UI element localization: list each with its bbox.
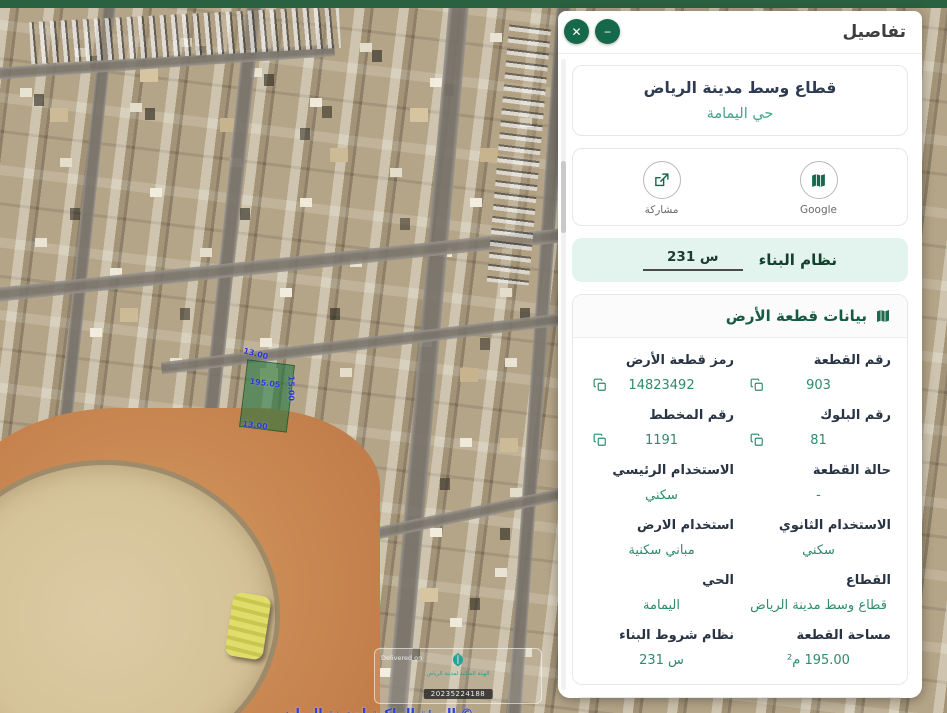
- watermark-org-text: الهيئة الملكية لمدينة الرياض: [426, 671, 489, 677]
- field-group: مساحة القطعة نظام شروط البناء 195.00 م² …: [589, 628, 891, 670]
- field-group: الاستخدام الثانوي استخدام الارض سكني مبا…: [589, 518, 891, 560]
- field-value: 195.00 م²: [746, 650, 891, 670]
- copy-icon[interactable]: [593, 378, 607, 392]
- field-value: س 231: [589, 650, 734, 670]
- panel-scroll-area[interactable]: قطاع وسط مدينة الرياض حي اليمامة Google …: [558, 53, 922, 698]
- map-icon: [875, 308, 891, 324]
- field-value: 14823492: [589, 375, 734, 395]
- minimize-button[interactable]: −: [595, 19, 620, 44]
- copy-icon[interactable]: [750, 433, 764, 447]
- map-attribution-text: © الهيئة الملكية لمدينة الرياض: [278, 707, 473, 713]
- parcel-data-header: بيانات قطعة الأرض: [573, 295, 907, 338]
- close-button[interactable]: ✕: [564, 19, 589, 44]
- field-label: رقم المخطط: [589, 408, 734, 423]
- field-value: -: [746, 485, 891, 505]
- field-value-text: 1191: [645, 433, 678, 448]
- rcrc-logo-icon: [451, 652, 464, 667]
- field-value: 903: [746, 375, 891, 395]
- share-icon: [643, 161, 681, 199]
- building-system-label: نظام البناء: [759, 251, 837, 269]
- top-green-bar: [0, 0, 947, 8]
- national-address-card: بيانات العنوان الوطني: [572, 697, 908, 698]
- google-label: Google: [800, 204, 837, 216]
- building-system-value[interactable]: س 231: [643, 249, 743, 271]
- building-system-bar: نظام البناء س 231: [572, 238, 908, 282]
- field-label: حالة القطعة: [746, 463, 891, 478]
- field-group: حالة القطعة الاستخدام الرئيسي - سكني: [589, 463, 891, 505]
- parcel-dimension-side: 15.00: [286, 376, 295, 401]
- watermark-box: Delivered on الهيئة الملكية لمدينة الريا…: [374, 648, 542, 704]
- watermark-logo: الهيئة الملكية لمدينة الرياض: [426, 652, 489, 677]
- field-value: مباني سكنية: [589, 540, 734, 560]
- parcel-data-body: رقم القطعة رمز قطعة الأرض 903 14823492 ر…: [573, 338, 907, 684]
- field-label: القطاع: [746, 573, 891, 588]
- panel-title: تفاصيل: [842, 22, 906, 42]
- parcel-area-label: 195.05: [249, 377, 281, 390]
- map-road: [387, 8, 470, 713]
- field-value: 1191: [589, 430, 734, 450]
- field-value: اليمامة: [589, 595, 734, 615]
- google-button[interactable]: Google: [800, 161, 838, 216]
- parcel-data-title: بيانات قطعة الأرض: [726, 307, 867, 325]
- watermark-delivered-label: Delivered on: [381, 654, 422, 662]
- map-shadow-blocks: [0, 8, 10, 20]
- field-value: سكني: [589, 485, 734, 505]
- field-group: القطاع الحي قطاع وسط مدينة الرياض اليمام…: [589, 573, 891, 615]
- selected-parcel-overlay[interactable]: 13.00 195.05 15.00 13.00: [240, 360, 294, 431]
- watermark-number: 20235224188: [424, 689, 493, 699]
- field-value-text: 903: [806, 378, 831, 393]
- field-label: الاستخدام الرئيسي: [589, 463, 734, 478]
- share-card: Google مشاركة: [572, 148, 908, 226]
- app-window: 13.00 195.05 15.00 13.00 Delivered on ال…: [0, 0, 947, 713]
- field-group: رقم البلوك رقم المخطط 81 1191: [589, 408, 891, 450]
- share-button[interactable]: مشاركة: [643, 161, 681, 216]
- field-label: استخدام الارض: [589, 518, 734, 533]
- location-card: قطاع وسط مدينة الرياض حي اليمامة: [572, 65, 908, 136]
- parcel-data-card: بيانات قطعة الأرض رقم القطعة رمز قطعة ال…: [572, 294, 908, 685]
- google-maps-icon: [800, 161, 838, 199]
- field-value: قطاع وسط مدينة الرياض: [746, 595, 891, 615]
- field-value-text: 14823492: [628, 378, 694, 393]
- scrollbar-track[interactable]: [561, 59, 566, 690]
- panel-window-controls: ✕ −: [564, 19, 620, 44]
- field-value: 81: [746, 430, 891, 450]
- field-label: رمز قطعة الأرض: [589, 353, 734, 368]
- scrollbar-thumb[interactable]: [561, 161, 566, 233]
- sector-title: قطاع وسط مدينة الرياض: [587, 79, 893, 97]
- field-value-text: 81: [810, 433, 827, 448]
- copy-icon[interactable]: [750, 378, 764, 392]
- field-value: سكني: [746, 540, 891, 560]
- copy-icon[interactable]: [593, 433, 607, 447]
- field-group: رقم القطعة رمز قطعة الأرض 903 14823492: [589, 353, 891, 395]
- field-label: رقم القطعة: [746, 353, 891, 368]
- field-label: رقم البلوك: [746, 408, 891, 423]
- field-label: الاستخدام الثانوي: [746, 518, 891, 533]
- field-label: نظام شروط البناء: [589, 628, 734, 643]
- field-label: مساحة القطعة: [746, 628, 891, 643]
- share-label: مشاركة: [645, 204, 679, 216]
- details-panel: ✕ − تفاصيل قطاع وسط مدينة الرياض حي اليم…: [558, 11, 922, 698]
- district-link[interactable]: حي اليمامة: [587, 106, 893, 122]
- field-label: الحي: [589, 573, 734, 588]
